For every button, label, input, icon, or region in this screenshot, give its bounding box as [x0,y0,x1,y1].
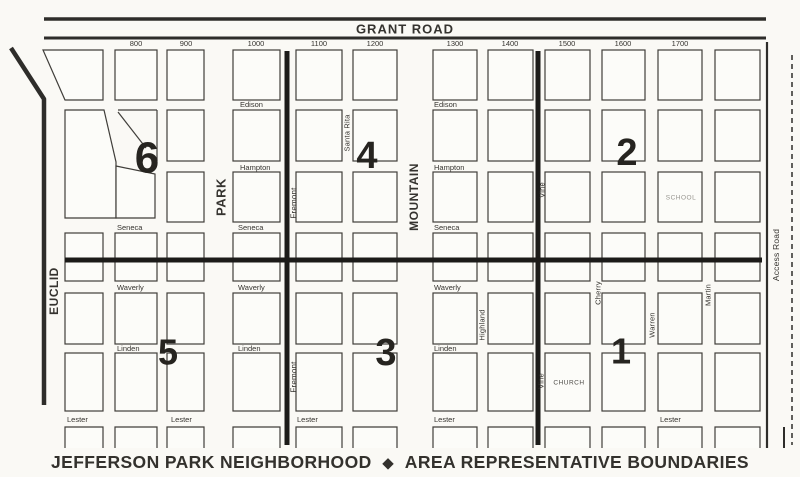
city-block [353,50,397,100]
city-block [715,110,760,161]
street-label-vertical: Vine [537,373,546,389]
city-block [602,233,645,281]
map-page: GRANT ROAD800900100011001200130014001500… [0,0,800,477]
city-block [658,110,702,161]
neighborhood-map: GRANT ROAD800900100011001200130014001500… [0,0,800,450]
street-label: Hampton [434,163,464,172]
title-neighborhood: JEFFERSON PARK NEIGHBORHOOD [51,452,372,473]
city-block [433,233,477,281]
city-block [65,427,103,448]
city-block [233,172,280,222]
city-block [65,110,116,218]
street-label: Lester [67,415,88,424]
street-label-vertical: Martin [704,284,713,306]
street-label: Seneca [117,223,143,232]
city-block [658,293,702,344]
city-block [65,293,103,344]
street-label: Waverly [117,283,144,292]
city-block [715,427,760,448]
city-block [433,427,477,448]
city-block [602,50,645,100]
city-block [167,50,204,100]
city-block [488,233,533,281]
title-boundaries: AREA REPRESENTATIVE BOUNDARIES [405,452,749,473]
city-block [488,293,533,344]
city-block [296,172,342,222]
city-block [115,50,157,100]
city-block [233,110,280,161]
city-block [433,110,477,161]
city-block [433,353,477,411]
street-label-vertical: EUCLID [47,267,61,315]
block-number-label: 1200 [367,39,384,48]
city-block [233,293,280,344]
city-block [658,233,702,281]
street-label-vertical: MOUNTAIN [407,163,421,231]
street-label: Linden [117,344,140,353]
city-block [233,427,280,448]
street-label: Lester [297,415,318,424]
area-number: 2 [616,132,637,174]
block-number-label: 1700 [672,39,689,48]
grant-road-label: GRANT ROAD [356,22,454,37]
city-block [658,427,702,448]
street-label: Hampton [240,163,270,172]
city-block [167,233,204,281]
block-number-label: 900 [180,39,193,48]
block-number-label: 1300 [447,39,464,48]
city-block [488,427,533,448]
city-block [65,353,103,411]
city-block [167,172,204,222]
city-block [488,110,533,161]
city-block [167,110,204,161]
city-block [715,172,760,222]
city-block [233,233,280,281]
block-number-label: 1500 [559,39,576,48]
road-line [11,48,44,405]
city-block [715,353,760,411]
city-block [433,50,477,100]
area-number: 3 [375,332,396,374]
street-label: Seneca [238,223,264,232]
street-label-vertical: Fremont [290,187,299,219]
city-block [296,353,342,411]
city-block [658,353,702,411]
landmark-label: SCHOOL [666,195,696,202]
city-block [296,50,342,100]
city-block [115,293,157,344]
landmark-label: CHURCH [553,380,584,387]
block-number-label: 1600 [615,39,632,48]
street-label: Edison [434,100,457,109]
city-block [602,427,645,448]
city-block [433,293,477,344]
city-block [545,172,590,222]
map-title: JEFFERSON PARK NEIGHBORHOOD ◆ AREA REPRE… [0,448,800,477]
city-block [167,427,204,448]
street-label-vertical: Access Road [771,229,781,281]
city-block [233,50,280,100]
block-number-label: 1400 [502,39,519,48]
block-number-label: 800 [130,39,143,48]
city-block [488,172,533,222]
street-label: Linden [238,344,261,353]
city-block [233,353,280,411]
city-block [296,427,342,448]
city-block [488,50,533,100]
street-label-vertical: Fremont [290,361,299,393]
city-block [602,172,645,222]
street-label: Waverly [434,283,461,292]
area-number: 5 [158,332,178,373]
block-number-label: 1000 [248,39,265,48]
city-block [296,233,342,281]
city-block [43,50,103,100]
street-label: Edison [240,100,263,109]
street-label-vertical: Santa Rita [343,114,352,152]
street-label: Lester [171,415,192,424]
city-block [353,427,397,448]
city-block [488,353,533,411]
city-block [296,293,342,344]
area-number: 1 [611,331,631,372]
city-block [296,110,342,161]
street-label: Lester [660,415,681,424]
city-block [545,427,590,448]
street-label-vertical: PARK [214,178,229,216]
city-block [115,427,157,448]
city-block [545,293,590,344]
city-block [545,110,590,161]
area-number: 6 [135,134,159,183]
street-label-vertical: Highland [478,309,487,340]
city-blocks [65,50,760,448]
city-block [353,172,397,222]
city-block [545,50,590,100]
block-number-label: 1100 [311,39,327,48]
city-block [545,233,590,281]
street-label-vertical: Cherry [594,281,603,305]
street-label: Lester [434,415,455,424]
street-label: Waverly [238,283,265,292]
city-block [65,233,103,281]
city-block [715,293,760,344]
city-block [658,50,702,100]
city-block [115,353,157,411]
street-label-vertical: Warren [648,312,657,338]
area-number: 4 [356,135,377,177]
city-block [433,172,477,222]
city-block [715,233,760,281]
street-label: Seneca [434,223,460,232]
title-diamond-icon: ◆ [383,455,394,472]
street-label: Linden [434,344,457,353]
city-block [353,233,397,281]
street-label-vertical: Vine [538,182,547,198]
city-block [715,50,760,100]
city-block [115,233,157,281]
